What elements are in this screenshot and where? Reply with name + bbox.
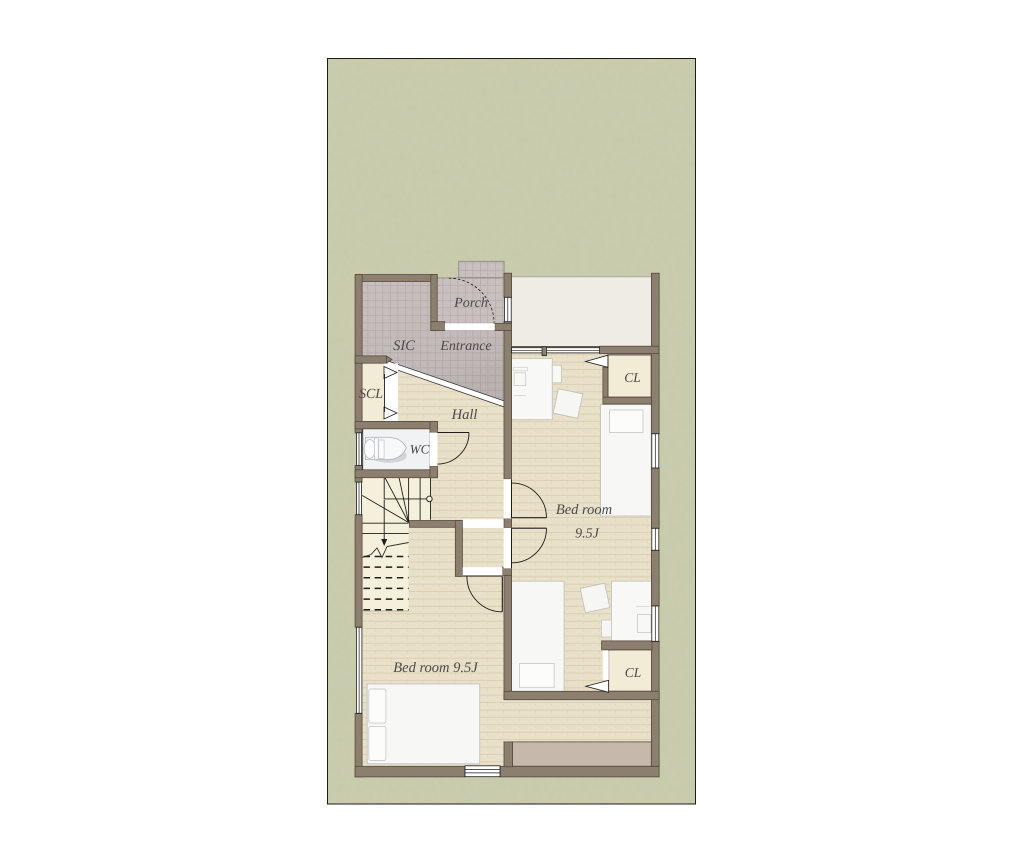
- svg-text:CL: CL: [625, 665, 642, 680]
- svg-text:Hall: Hall: [451, 407, 478, 423]
- svg-text:Bed room: Bed room: [556, 502, 612, 518]
- svg-text:SCL: SCL: [359, 387, 383, 402]
- svg-text:9.5J: 9.5J: [575, 527, 600, 542]
- svg-text:Porch: Porch: [453, 296, 488, 311]
- svg-text:WC: WC: [410, 442, 430, 457]
- svg-text:CL: CL: [624, 370, 641, 385]
- svg-text:Entrance: Entrance: [439, 339, 491, 354]
- svg-text:SIC: SIC: [393, 338, 415, 354]
- svg-text:Bed room 9.5J: Bed room 9.5J: [393, 660, 478, 676]
